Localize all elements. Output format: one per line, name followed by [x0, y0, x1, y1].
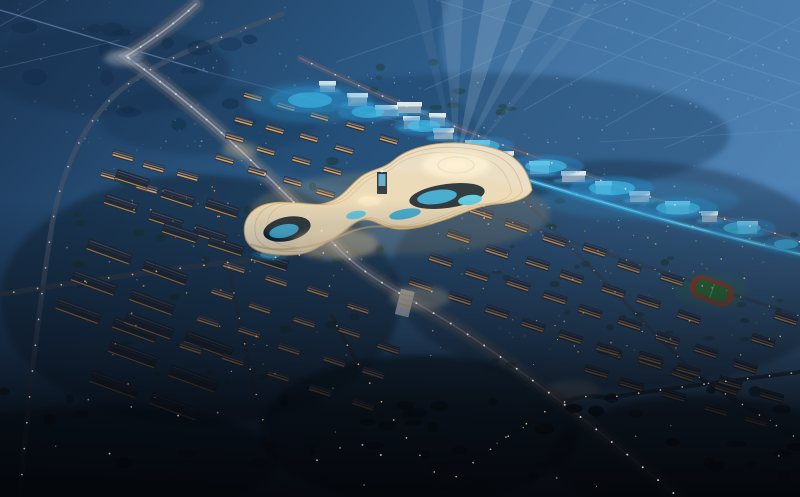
ambient-light-dot	[90, 95, 92, 97]
street-lamp	[642, 466, 644, 468]
ambient-light-dot	[1, 9, 2, 10]
ambient-light-dot	[66, 247, 68, 249]
street-lamp	[381, 401, 383, 403]
ambient-light-dot	[132, 203, 133, 204]
ambient-light-dot	[530, 234, 531, 235]
street-lamp	[516, 368, 518, 370]
ambient-light-dot	[431, 291, 433, 293]
ambient-light-dot	[604, 266, 605, 267]
street-lamp	[572, 248, 573, 249]
street-lamp	[626, 454, 628, 456]
street-lamp	[307, 215, 309, 217]
street-lamp	[406, 106, 408, 108]
ambient-light-dot	[279, 53, 281, 55]
ambient-light-dot	[563, 321, 565, 323]
ambient-light-dot	[307, 77, 308, 78]
ambient-light-dot	[690, 103, 692, 105]
ambient-light-dot	[697, 40, 699, 42]
ambient-light-dot	[675, 347, 677, 349]
ambient-light-dot	[217, 412, 219, 414]
ambient-light-dot	[105, 109, 106, 110]
street-lamp	[278, 187, 280, 189]
ambient-light-dot	[322, 245, 323, 246]
ambient-light-dot	[317, 332, 318, 333]
ambient-light-dot	[154, 397, 155, 398]
street-lamp	[381, 282, 383, 284]
ambient-light-dot	[335, 431, 336, 432]
ambient-light-dot	[727, 98, 729, 100]
ambient-light-dot	[632, 32, 633, 33]
ambient-light-dot	[187, 146, 188, 147]
ambient-light-dot	[109, 2, 110, 3]
ambient-light-dot	[605, 270, 606, 271]
street-lamp	[293, 201, 295, 203]
street-lamp	[769, 375, 771, 377]
ambient-light-dot	[499, 115, 500, 116]
ambient-light-dot	[216, 60, 218, 62]
ambient-light-dot	[419, 87, 420, 88]
ambient-light-dot	[194, 141, 195, 142]
ambient-light-dot	[728, 57, 729, 58]
ambient-light-dot	[151, 169, 152, 170]
street-lamp	[175, 93, 177, 95]
street-lamp	[483, 345, 485, 347]
street-lamp	[364, 271, 366, 273]
ambient-light-dot	[616, 27, 617, 28]
street-lamp	[532, 380, 534, 382]
ambient-light-dot	[693, 271, 694, 272]
ambient-light-dot	[117, 106, 119, 108]
ambient-light-dot	[165, 140, 167, 142]
street-lamp	[657, 479, 659, 481]
ambient-light-dot	[128, 90, 129, 91]
ambient-light-dot	[422, 122, 423, 123]
ambient-light-dot	[524, 134, 525, 135]
street-lamp	[132, 274, 134, 276]
ambient-light-dot	[738, 173, 739, 174]
street-lamp	[255, 394, 257, 396]
ambient-light-dot	[211, 22, 213, 24]
ambient-light-dot	[135, 325, 137, 327]
ambient-light-dot	[574, 345, 575, 346]
ambient-light-dot	[202, 259, 203, 260]
ambient-light-dot	[685, 89, 687, 91]
ambient-light-dot	[231, 371, 232, 372]
ambient-light-dot	[585, 3, 586, 4]
ambient-light-dot	[194, 62, 196, 64]
ambient-light-dot	[779, 336, 781, 338]
street-lamp	[196, 46, 198, 48]
ambient-light-dot	[403, 171, 404, 172]
ambient-light-dot	[755, 127, 756, 128]
ambient-light-dot	[611, 250, 612, 251]
ambient-light-dot	[731, 75, 732, 76]
ambient-light-dot	[130, 406, 132, 408]
street-lamp	[245, 27, 247, 29]
ambient-light-dot	[263, 364, 264, 365]
ambient-light-dot	[743, 277, 745, 279]
street-lamp	[483, 212, 484, 213]
ambient-light-dot	[291, 91, 292, 92]
ambient-light-dot	[66, 131, 68, 133]
ambient-light-dot	[545, 42, 546, 43]
ambient-light-dot	[555, 142, 556, 143]
ambient-light-dot	[327, 168, 328, 169]
ambient-light-dot	[391, 124, 392, 125]
ambient-light-dot	[131, 312, 133, 314]
ambient-light-dot	[483, 217, 485, 219]
street-lamp	[227, 262, 229, 264]
ambient-light-dot	[250, 219, 251, 220]
ambient-light-dot	[742, 246, 743, 247]
ambient-light-dot	[627, 132, 628, 133]
ambient-light-dot	[131, 200, 133, 202]
ambient-light-dot	[597, 220, 598, 221]
ambient-light-dot	[197, 203, 198, 204]
ambient-light-dot	[274, 373, 275, 374]
ambient-light-dot	[613, 148, 615, 150]
ambient-light-dot	[528, 137, 530, 139]
street-lamp	[188, 10, 190, 12]
ambient-light-dot	[209, 139, 210, 140]
ambient-light-dot	[37, 30, 38, 31]
street-lamp	[155, 270, 157, 272]
street-lamp	[656, 335, 657, 336]
ambient-light-dot	[683, 13, 685, 15]
ambient-light-dot	[596, 486, 597, 487]
ambient-light-dot	[19, 3, 20, 4]
street-lamp	[299, 254, 301, 256]
ambient-light-dot	[536, 320, 537, 321]
street-lamp	[749, 225, 751, 227]
ambient-light-dot	[346, 355, 347, 356]
street-lamp	[228, 267, 230, 269]
street-lamp	[244, 343, 246, 345]
ambient-light-dot	[770, 420, 771, 421]
street-lamp	[625, 188, 627, 190]
street-lamp	[512, 222, 513, 223]
ambient-light-dot	[505, 436, 507, 438]
ambient-light-dot	[483, 127, 485, 129]
ambient-light-dot	[619, 118, 620, 119]
street-lamp	[472, 462, 474, 464]
ambient-light-dot	[672, 288, 673, 289]
street-lamp	[683, 278, 684, 279]
street-lamp	[173, 57, 175, 59]
ambient-light-dot	[610, 342, 612, 344]
ambient-light-dot	[496, 443, 497, 444]
ambient-light-dot	[192, 245, 193, 246]
ambient-light-dot	[220, 289, 222, 291]
ambient-light-dot	[259, 132, 260, 133]
street-lamp	[564, 401, 566, 403]
street-lamp	[672, 492, 674, 494]
ambient-light-dot	[239, 235, 240, 236]
ambient-light-dot	[670, 425, 671, 426]
ambient-light-dot	[131, 32, 132, 33]
street-lamp	[626, 259, 627, 260]
ambient-light-dot	[521, 50, 523, 52]
street-lamp	[29, 396, 31, 398]
ambient-light-dot	[778, 47, 780, 49]
ambient-light-dot	[542, 235, 544, 237]
ambient-light-dot	[592, 8, 593, 9]
ambient-light-dot	[148, 64, 149, 65]
ambient-light-dot	[568, 86, 569, 87]
street-lamp	[595, 428, 597, 430]
ambient-light-dot	[400, 165, 402, 167]
street-lamp	[233, 292, 235, 294]
street-lamp	[269, 18, 271, 20]
ambient-light-dot	[194, 123, 196, 125]
street-lamp	[31, 370, 33, 372]
ambient-light-dot	[55, 445, 56, 446]
street-lamp	[349, 258, 351, 260]
ambient-light-dot	[459, 150, 460, 151]
ambient-light-dot	[714, 80, 716, 82]
ambient-light-dot	[185, 113, 186, 114]
ambient-light-dot	[254, 344, 255, 345]
ambient-light-dot	[394, 82, 395, 83]
street-lamp	[250, 159, 252, 161]
ambient-light-dot	[186, 198, 187, 199]
ambient-light-dot	[143, 144, 144, 145]
street-lamp	[92, 120, 94, 122]
ambient-light-dot	[737, 116, 738, 117]
ambient-light-dot	[276, 232, 277, 233]
ambient-light-dot	[143, 285, 145, 287]
street-lamp	[564, 404, 566, 406]
street-lamp	[551, 162, 553, 164]
ambient-light-dot	[219, 325, 220, 326]
street-lamp	[84, 280, 86, 282]
ambient-light-dot	[626, 19, 628, 21]
street-lamp	[649, 196, 651, 198]
ambient-light-dot	[618, 227, 620, 229]
street-lamp	[580, 416, 582, 418]
ambient-light-dot	[361, 444, 363, 446]
ambient-light-dot	[43, 43, 45, 45]
street-lamp	[502, 144, 504, 146]
ambient-light-dot	[266, 345, 268, 347]
street-lamp	[172, 23, 174, 25]
ambient-light-dot	[596, 118, 597, 119]
street-lamp	[530, 206, 531, 207]
ambient-light-dot	[550, 18, 551, 19]
ambient-light-dot	[477, 82, 479, 84]
ambient-light-dot	[740, 49, 741, 50]
ambient-light-dot	[329, 285, 331, 287]
street-lamp	[347, 344, 349, 346]
ambient-light-dot	[692, 226, 694, 228]
ambient-light-dot	[523, 201, 525, 203]
ambient-light-dot	[571, 84, 573, 86]
street-lamp	[740, 296, 741, 297]
street-lamp	[490, 448, 492, 450]
street-lamp	[53, 216, 55, 218]
ambient-light-dot	[409, 81, 410, 82]
street-lamp	[433, 471, 435, 473]
ambient-light-dot	[468, 248, 469, 249]
street-lamp	[41, 293, 43, 295]
ambient-light-dot	[572, 279, 573, 280]
ambient-light-dot	[109, 453, 111, 455]
street-lamp	[507, 435, 509, 437]
ambient-light-dot	[84, 138, 86, 140]
ambient-light-dot	[363, 484, 365, 486]
ambient-light-dot	[148, 34, 149, 35]
ambient-light-dot	[217, 216, 219, 218]
ambient-light-dot	[769, 338, 771, 340]
ambient-light-dot	[495, 270, 496, 271]
ambient-light-dot	[614, 109, 615, 110]
ambient-light-dot	[251, 366, 252, 367]
ambient-light-dot	[523, 427, 524, 428]
ambient-light-dot	[557, 339, 558, 340]
ambient-light-dot	[610, 272, 611, 273]
ambient-light-dot	[577, 153, 578, 154]
street-lamp	[206, 119, 208, 121]
ambient-light-dot	[547, 141, 549, 143]
ambient-light-dot	[332, 387, 334, 389]
ambient-light-dot	[82, 113, 84, 115]
street-lamp	[214, 190, 216, 192]
ambient-light-dot	[604, 54, 605, 55]
ambient-light-dot	[83, 28, 84, 29]
street-lamp	[593, 270, 594, 271]
ambient-light-dot	[294, 85, 296, 87]
street-lamp	[699, 377, 700, 378]
ambient-light-dot	[726, 290, 727, 291]
ambient-light-dot	[779, 144, 780, 145]
ambient-light-dot	[613, 33, 614, 34]
ambient-light-dot	[112, 354, 113, 355]
ambient-light-dot	[144, 40, 145, 41]
ambient-light-dot	[604, 173, 605, 174]
ambient-light-dot	[724, 217, 725, 218]
ambient-light-dot	[440, 347, 441, 348]
ambient-light-dot	[690, 5, 691, 6]
ambient-light-dot	[507, 253, 508, 254]
ambient-light-dot	[6, 51, 7, 52]
street-lamp	[454, 125, 456, 127]
street-lamp	[774, 232, 776, 234]
street-lamp	[747, 378, 749, 380]
street-lamp	[467, 333, 469, 335]
ambient-light-dot	[404, 120, 405, 121]
ambient-light-dot	[187, 145, 188, 146]
ambient-light-dot	[88, 84, 90, 86]
ambient-light-dot	[669, 270, 671, 272]
ambient-light-dot	[748, 98, 749, 99]
street-lamp	[600, 179, 602, 181]
street-lamp	[223, 241, 225, 243]
street-lamp	[34, 344, 36, 346]
ambient-light-dot	[393, 77, 394, 78]
street-lamp	[275, 256, 277, 258]
street-lamp	[703, 383, 705, 385]
ambient-light-dot	[469, 336, 470, 337]
ambient-light-dot	[201, 140, 203, 142]
ambient-light-dot	[742, 217, 743, 218]
ambient-light-dot	[346, 162, 347, 163]
aerial-city-rendering	[0, 0, 800, 497]
street-lamp	[500, 356, 502, 358]
street-lamp	[190, 106, 192, 108]
ambient-light-dot	[671, 105, 673, 107]
ambient-light-dot	[339, 447, 341, 449]
ambient-light-dot	[271, 245, 272, 246]
street-lamp	[455, 476, 457, 478]
ambient-light-dot	[416, 193, 417, 194]
ambient-light-dot	[352, 308, 354, 310]
street-lamp	[251, 259, 253, 261]
ambient-light-dot	[749, 238, 751, 240]
street-lamp	[322, 252, 324, 254]
street-lamp	[797, 315, 798, 316]
ambient-light-dot	[556, 77, 558, 79]
ambient-light-dot	[723, 79, 724, 80]
street-lamp	[725, 393, 727, 395]
ambient-light-dot	[772, 296, 774, 298]
ambient-light-dot	[212, 67, 214, 69]
ambient-light-dot	[665, 57, 666, 58]
ambient-light-dot	[578, 138, 580, 140]
ambient-light-dot	[483, 205, 485, 207]
ambient-light-dot	[541, 204, 542, 205]
ambient-light-dot	[665, 341, 666, 342]
ambient-light-dot	[647, 237, 649, 239]
ambient-light-dot	[203, 68, 205, 70]
ambient-light-dot	[755, 55, 756, 56]
ambient-light-dot	[211, 186, 213, 188]
ambient-light-dot	[194, 227, 196, 229]
street-lamp	[415, 302, 417, 304]
street-lamp	[569, 241, 570, 242]
ambient-light-dot	[254, 261, 256, 263]
ambient-light-dot	[283, 70, 284, 71]
ambient-light-dot	[265, 142, 267, 144]
ambient-light-dot	[430, 355, 431, 356]
ambient-light-dot	[791, 123, 793, 125]
street-lamp	[143, 68, 145, 70]
street-lamp	[369, 382, 371, 384]
ambient-light-dot	[547, 139, 548, 140]
ambient-light-dot	[273, 259, 274, 260]
ambient-light-dot	[367, 75, 368, 76]
ambient-light-dot	[778, 455, 780, 457]
ambient-light-dot	[618, 220, 619, 221]
ambient-light-dot	[702, 79, 704, 81]
street-lamp	[321, 230, 323, 232]
ambient-light-dot	[17, 9, 18, 10]
street-lamp	[45, 267, 47, 269]
ambient-light-dot	[694, 72, 696, 74]
ambient-light-dot	[361, 258, 363, 260]
street-lamp	[611, 441, 613, 443]
ambient-light-dot	[755, 98, 757, 100]
street-lamp	[575, 171, 577, 173]
ambient-light-dot	[245, 72, 246, 73]
ambient-light-dot	[526, 275, 527, 276]
ambient-light-dot	[642, 331, 643, 332]
street-lamp	[235, 145, 237, 147]
ambient-light-dot	[99, 138, 100, 139]
ambient-light-dot	[205, 23, 206, 24]
ambient-light-dot	[589, 117, 591, 119]
ambient-light-dot	[633, 235, 634, 236]
street-lamp	[419, 454, 421, 456]
